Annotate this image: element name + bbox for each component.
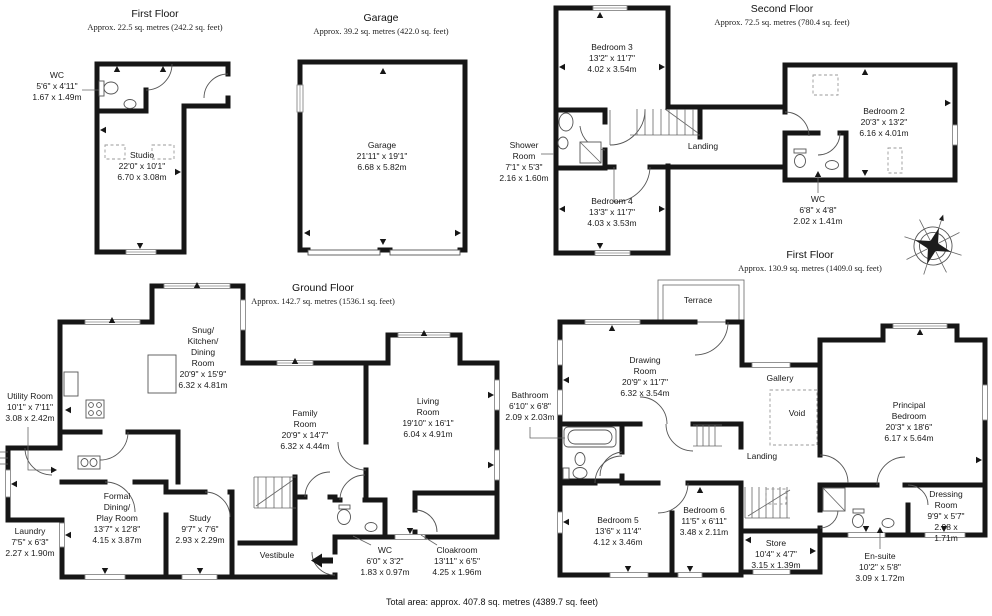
room-label-landing-second: Landing xyxy=(688,141,718,152)
room-label-principal-bedroom: Principal Bedroom 20'3" x 18'6" 6.17 x 5… xyxy=(884,400,933,444)
room-label-wc-second: WC 6'8" x 4'8" 2.02 x 1.41m xyxy=(793,194,842,227)
header-second-floor: Second Floor Approx. 72.5 sq. metres (78… xyxy=(714,3,849,27)
room-label-laundry: Laundry 7'5" x 6'3" 2.27 x 1.90m xyxy=(5,526,54,559)
compass-rose-icon xyxy=(895,205,972,283)
room-label-family-room: Family Room 20'9" x 14'7" 6.32 x 4.44m xyxy=(280,408,329,452)
room-label-living-room: Living Room 19'10" x 16'1" 6.04 x 4.91m xyxy=(402,396,453,440)
room-label-drawing-room: Drawing Room 20'9" x 11'7" 6.32 x 3.54m xyxy=(620,355,669,399)
room-label-bedroom4: Bedroom 4 13'3" x 11'7" 4.03 x 3.53m xyxy=(587,196,636,229)
room-label-store: Store 10'4" x 4'7" 3.15 x 1.39m xyxy=(751,538,800,571)
room-label-gallery: Gallery xyxy=(767,373,794,384)
room-label-study: Study 9'7" x 7'6" 2.93 x 2.29m xyxy=(175,513,224,546)
floorplan-page: First Floor Approx. 22.5 sq. metres (242… xyxy=(0,0,992,616)
room-label-dressing-room: Dressing Room 9'9" x 5'7" 2.98 x 1.71m xyxy=(923,489,969,544)
floor-area: Approx. 142.7 sq. metres (1536.1 sq. fee… xyxy=(251,296,395,306)
room-label-bathroom: Bathroom 6'10" x 6'8" 2.09 x 2.03m xyxy=(505,390,554,423)
room-label-shower-room: Shower Room 7'1" x 5'3" 2.16 x 1.60m xyxy=(499,140,548,184)
floor-title: Garage xyxy=(313,12,448,24)
floor-area: Approx. 130.9 sq. metres (1409.0 sq. fee… xyxy=(738,263,882,273)
room-label-wc-annex: WC 5'6" x 4'11" 1.67 x 1.49m xyxy=(32,70,81,103)
room-label-studio: Studio 22'0" x 10'1" 6.70 x 3.08m xyxy=(117,150,166,183)
floor-title: First Floor xyxy=(738,249,882,261)
room-label-cloakroom: Cloakroom 13'11" x 6'5" 4.25 x 1.96m xyxy=(432,545,481,578)
room-label-bedroom6: Bedroom 6 11'5" x 6'11" 3.48 x 2.11m xyxy=(680,505,729,538)
entrance-arrow-icon xyxy=(311,554,333,568)
room-label-bedroom2: Bedroom 2 20'3" x 13'2" 6.16 x 4.01m xyxy=(859,106,908,139)
total-area-text: Total area: approx. 407.8 sq. metres (43… xyxy=(386,597,598,607)
floor-area: Approx. 22.5 sq. metres (242.2 sq. feet) xyxy=(87,22,222,32)
room-label-utility: Utility Room 10'1" x 7'11" 3.08 x 2.42m xyxy=(5,391,54,424)
floor-area: Approx. 39.2 sq. metres (422.0 sq. feet) xyxy=(313,26,448,36)
room-label-bedroom3: Bedroom 3 13'2" x 11'7" 4.02 x 3.54m xyxy=(587,42,636,75)
floor-title: First Floor xyxy=(87,8,222,20)
room-label-void: Void xyxy=(789,408,806,419)
header-annex-first-floor: First Floor Approx. 22.5 sq. metres (242… xyxy=(87,8,222,32)
floor-area: Approx. 72.5 sq. metres (780.4 sq. feet) xyxy=(714,17,849,27)
floorplan-canvas xyxy=(0,0,992,616)
header-ground-floor: Ground Floor Approx. 142.7 sq. metres (1… xyxy=(251,282,395,306)
room-label-garage: Garage 21'11" x 19'1" 6.68 x 5.82m xyxy=(357,140,408,173)
floor-title: Ground Floor xyxy=(251,282,395,294)
room-label-wc-ground: WC 6'0" x 3'2" 1.83 x 0.97m xyxy=(360,545,409,578)
room-label-landing-first: Landing xyxy=(747,451,777,462)
room-label-vestibule: Vestibule xyxy=(260,550,295,561)
room-label-formal-dining: Formal Dining/ Play Room 13'7" x 12'8" 4… xyxy=(92,491,141,546)
room-label-bedroom5: Bedroom 5 13'6" x 11'4" 4.12 x 3.46m xyxy=(593,515,642,548)
room-label-terrace: Terrace xyxy=(684,295,712,306)
room-label-ensuite: En-suite 10'2" x 5'8" 3.09 x 1.72m xyxy=(855,551,904,584)
header-garage: Garage Approx. 39.2 sq. metres (422.0 sq… xyxy=(313,12,448,36)
floor-title: Second Floor xyxy=(714,3,849,15)
room-label-snug-kitchen-dining: Snug/ Kitchen/ Dining Room 20'9" x 15'9"… xyxy=(178,325,227,391)
header-first-floor: First Floor Approx. 130.9 sq. metres (14… xyxy=(738,249,882,273)
